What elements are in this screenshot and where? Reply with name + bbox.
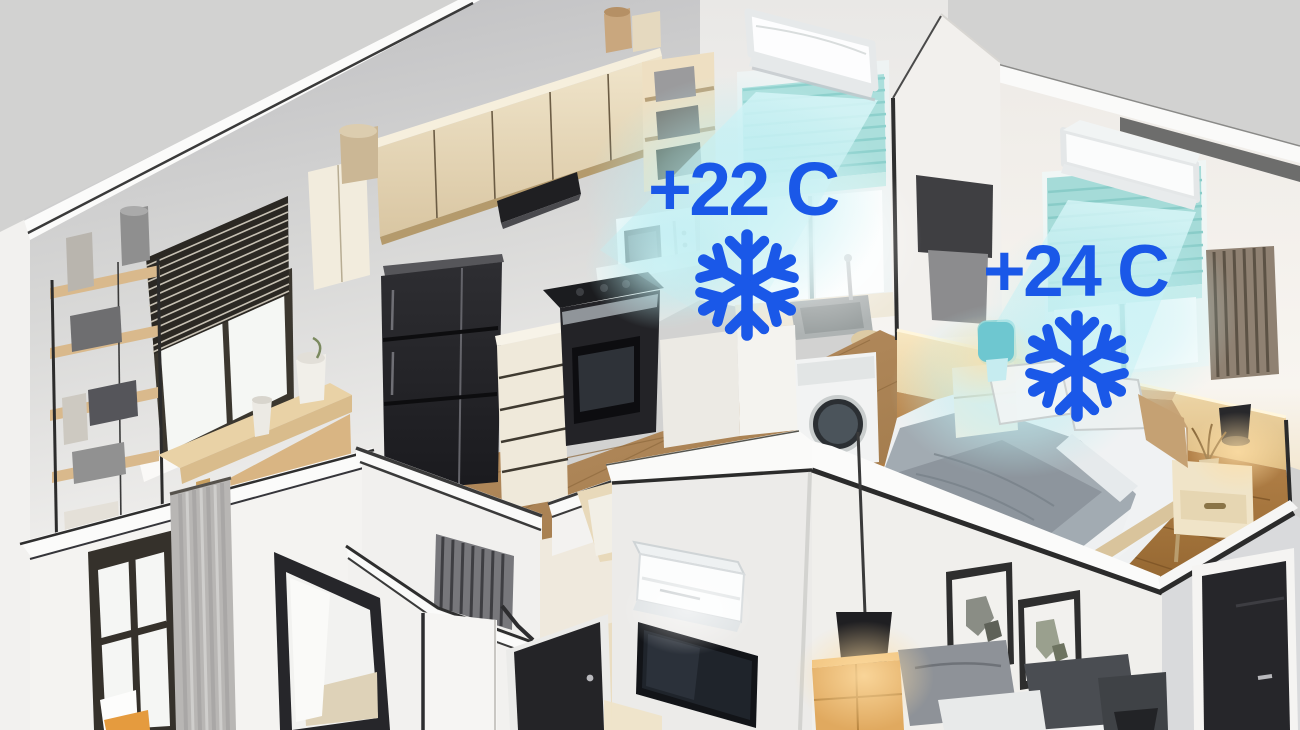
svg-text:+24 C: +24 C xyxy=(983,231,1168,312)
svg-text:+22 C: +22 C xyxy=(648,147,839,231)
